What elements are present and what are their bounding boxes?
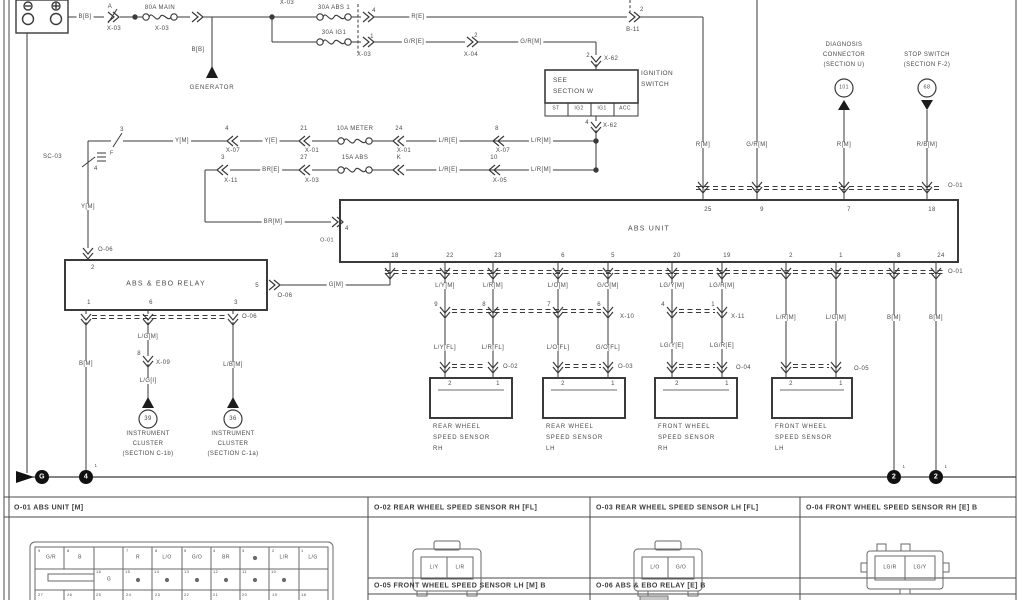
cluster-arrow: [227, 397, 239, 408]
ignition-switch-box: [545, 70, 638, 116]
o03-connector-drawing: [634, 541, 702, 596]
battery-symbol: [16, 0, 68, 33]
ignition-output-wire: [594, 116, 598, 172]
diagnosis-ref-circle: [835, 79, 853, 97]
abs-unit-box: [340, 200, 958, 262]
o02-connector-drawing: [413, 541, 481, 596]
ground-bus: [16, 33, 1016, 484]
cluster-ref-circle: [224, 410, 242, 428]
sensor-boxes: [430, 378, 852, 418]
diagnosis-arrow: [838, 100, 850, 110]
relay-box: [65, 260, 267, 310]
stop-switch-arrow: [921, 100, 933, 110]
stop-switch-ref-circle: [918, 79, 936, 97]
page-borders: [4, 0, 1016, 600]
abs-top-feeds: [696, 0, 940, 200]
o04-connector-drawing: [861, 544, 949, 594]
wiring-diagram-page: B[B]AX-0380A MAINX-03B[B]GENERATORX-0330…: [0, 0, 1024, 600]
relay-wires: [86, 262, 390, 470]
diagram-canvas: [0, 0, 1024, 600]
o01-connector-drawing: [30, 542, 333, 600]
abs-bottom-wires: [385, 262, 944, 470]
cluster-ref-circle: [139, 410, 157, 428]
generator-arrow: [206, 66, 218, 78]
connector-table: [4, 497, 1016, 600]
o06-connector-drawing: [640, 596, 668, 600]
cluster-arrow: [142, 397, 154, 408]
